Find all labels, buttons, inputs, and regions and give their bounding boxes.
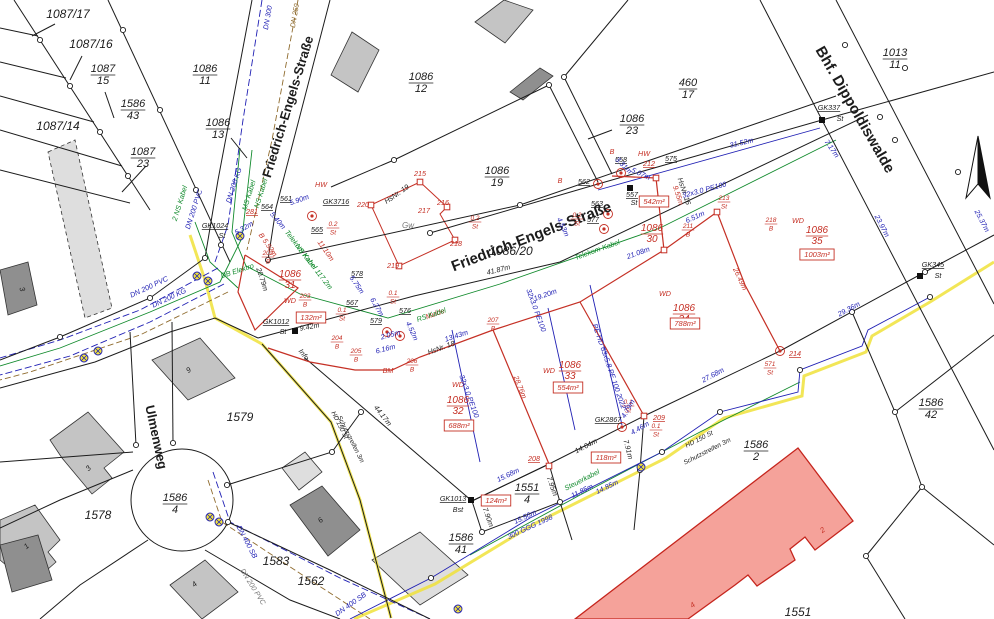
area-value: 554m² <box>557 383 579 392</box>
street-name: Friedrich-Engels-Straße <box>449 198 614 275</box>
map-label: 565 <box>311 225 324 234</box>
parcel-number: 1086 <box>279 269 302 280</box>
point-label: 205 <box>350 348 362 355</box>
map-label: 575 <box>665 154 678 163</box>
map-label: Telekom Kabel <box>573 237 621 262</box>
boundary-point <box>717 409 722 414</box>
map-label: 29.36m <box>835 299 861 319</box>
area-value: 542m² <box>643 197 665 206</box>
map-label: HW <box>315 180 328 189</box>
map-label: GK337 <box>818 103 841 112</box>
subdivision-line <box>717 212 780 351</box>
map-label: 216 <box>436 198 449 207</box>
parcel-number: 1562 <box>298 574 325 588</box>
map-label: DN 200 PVC <box>238 567 268 607</box>
map-label: 579 <box>370 316 382 325</box>
point-label: B <box>491 326 496 333</box>
boundary-point <box>427 230 432 235</box>
survey-point-dot <box>620 425 623 428</box>
point-label: 0.1 <box>651 423 660 430</box>
map-label: 6.16m <box>375 342 397 356</box>
map-label: Schutzstreifen 3m <box>335 415 365 465</box>
map-label: B <box>610 147 615 156</box>
parcel-line <box>262 344 391 618</box>
boundary-point <box>218 242 223 247</box>
site-plan-map: Friedrich-Engels-StraßeFriedrich-Engels-… <box>0 0 994 619</box>
new-boundary-point <box>714 209 720 215</box>
gk-marker <box>468 497 474 503</box>
parcel-line <box>105 92 114 118</box>
map-label: 23.97m <box>872 212 892 238</box>
map-label: 208 <box>527 454 540 463</box>
boundary-point <box>659 449 664 454</box>
parcel-number: 1583 <box>263 554 290 568</box>
parcel-number: 23 <box>136 158 150 170</box>
point-label: St <box>472 224 479 231</box>
map-label: HsNr. 18 <box>426 339 455 357</box>
parcel-number: 1013 <box>883 47 908 59</box>
map-label: WD <box>792 216 804 225</box>
parcel-number: 19 <box>491 177 503 189</box>
area-value: 132m² <box>300 313 322 322</box>
north-arrow-icon <box>966 136 978 198</box>
point-label: B <box>335 344 340 351</box>
boundary-point <box>557 499 562 504</box>
map-label: St <box>837 114 845 123</box>
survey-point-dot <box>602 227 605 230</box>
map-label: 212 <box>642 159 655 168</box>
boundary-point <box>225 519 230 524</box>
map-label: 214 <box>788 349 801 358</box>
boundary-point <box>517 202 522 207</box>
parcel-line <box>836 0 994 304</box>
boundary-point <box>120 27 125 32</box>
duct-line <box>208 480 370 619</box>
map-label: DN 400 SB <box>235 524 260 560</box>
parcel-line <box>866 487 922 556</box>
point-label: 218 <box>765 217 777 224</box>
parcel-number: 11 <box>199 75 210 87</box>
boundary-point <box>546 82 551 87</box>
map-label: WD <box>543 366 555 375</box>
point-label: B <box>266 259 271 266</box>
parcel-number: 30 <box>646 234 658 245</box>
map-label: 563 <box>591 199 603 208</box>
map-label: 577 <box>587 215 600 224</box>
parcel-number: 1086 <box>559 360 582 371</box>
parcel-line <box>866 556 905 619</box>
building <box>282 452 322 490</box>
parcel-number: 1579 <box>227 410 254 424</box>
parcel-line <box>331 85 549 187</box>
map-label: 6.27m <box>368 296 386 318</box>
new-boundary-point <box>368 202 374 208</box>
boundary-point <box>892 137 897 142</box>
parcel-number: 1086 <box>806 225 829 236</box>
boundary-point <box>842 42 847 47</box>
boundary-point <box>157 107 162 112</box>
gk-marker <box>819 117 825 123</box>
parcel-number: 15 <box>97 75 110 87</box>
map-label: 25.37m <box>972 207 992 233</box>
cable-line <box>0 150 252 366</box>
boundary-point <box>561 74 566 79</box>
boundary-point <box>170 440 175 445</box>
parcel-number: 1086 <box>673 303 696 314</box>
new-boundary-point <box>546 463 552 469</box>
parcel-line <box>564 77 612 174</box>
parcel-number: 1086 <box>485 165 510 177</box>
building <box>48 140 112 318</box>
point-label: St <box>767 370 774 377</box>
parcel-number: 1586 <box>744 439 769 451</box>
parcel-number: 1086 <box>620 113 645 125</box>
map-label: St <box>631 198 639 207</box>
parcel-number: 11 <box>889 59 900 71</box>
planned-building <box>575 448 853 619</box>
map-label: St <box>219 231 227 240</box>
parcel-number: 31 <box>284 280 295 291</box>
map-label: 11.10m <box>316 238 337 262</box>
gk-marker <box>917 273 923 279</box>
point-label: 0.1 <box>388 290 397 297</box>
new-boundary-point <box>417 179 423 185</box>
map-label: 7.90m <box>481 506 496 528</box>
map-label: 564 <box>261 202 273 211</box>
water-line <box>598 128 820 190</box>
map-label: WD <box>284 296 296 305</box>
point-label: B <box>354 357 359 364</box>
point-label: 203 <box>299 293 311 300</box>
map-label: DN 250 <box>288 3 301 29</box>
boundary-point <box>877 114 882 119</box>
point-label: B <box>686 232 691 239</box>
map-label: St <box>280 327 288 336</box>
parcel-number: 1586 <box>163 492 188 504</box>
map-label: GK2867 <box>595 415 622 424</box>
boundary-point <box>358 409 363 414</box>
parcel-line <box>895 412 922 487</box>
point-label: St <box>390 299 397 306</box>
boundary-point <box>391 157 396 162</box>
parcel-line <box>0 28 38 36</box>
map-label: 220 <box>356 200 369 209</box>
boundary-point <box>202 255 207 260</box>
area-value: 124m² <box>485 496 507 505</box>
point-label: 206 <box>406 358 418 365</box>
point-label: 204 <box>331 335 343 342</box>
north-arrow <box>966 136 990 198</box>
parcel-number: 1551 <box>515 482 539 494</box>
parcel-number: 1086 <box>409 71 434 83</box>
boundary-point <box>902 65 907 70</box>
parcel-line <box>922 487 994 545</box>
gk-marker <box>292 328 298 334</box>
map-label: 562 <box>578 177 590 186</box>
parcel-number: 35 <box>811 236 823 247</box>
map-label: B <box>558 176 563 185</box>
map-label: 21.08m <box>624 244 651 261</box>
map-label: Info <box>297 347 311 362</box>
north-arrow-icon <box>978 136 990 198</box>
map-label: DB Elektro <box>219 261 254 280</box>
parcel-number: 33 <box>564 371 576 382</box>
new-boundary-point <box>661 247 667 253</box>
point-label: 0.2 <box>470 215 479 222</box>
map-label: DN 200 KG <box>224 166 244 204</box>
parcel-line <box>895 335 994 412</box>
point-label: 571 <box>765 361 776 368</box>
map-label: 219 <box>386 261 399 270</box>
map-label: WD <box>659 289 671 298</box>
parcel-line <box>549 85 598 182</box>
parcel-number: 13 <box>212 129 225 141</box>
map-label: 28.76m <box>511 373 529 400</box>
parcel-line <box>130 332 136 445</box>
map-label: GK1012 <box>263 317 289 326</box>
map-label: 218 <box>449 239 462 248</box>
parcel-number: 1087/14 <box>36 119 80 133</box>
boundary-point <box>67 83 72 88</box>
map-label: GK3716 <box>323 197 349 206</box>
street-name: Ulmenweg <box>142 404 170 471</box>
parcel-number: 12 <box>415 83 427 95</box>
survey-point-dot <box>778 349 781 352</box>
parcel-number: 1586 <box>449 532 474 544</box>
new-boundary-point <box>653 175 659 181</box>
point-label: St <box>653 432 660 439</box>
area-value: 118m² <box>596 453 617 462</box>
map-label: GK1024 <box>202 221 228 230</box>
map-label: PE-HD 63x5.8 PE 100 2022 <box>591 322 629 410</box>
parcel-line <box>588 130 612 139</box>
boundary-point <box>57 334 62 339</box>
area-value: 1003m² <box>804 250 830 259</box>
parcel-number: 1087 <box>131 146 156 158</box>
parcel-number: 43 <box>127 110 140 122</box>
parcel-number: 42 <box>925 409 937 421</box>
building <box>50 412 124 494</box>
point-label: St <box>721 204 728 211</box>
point-label: 0.1 <box>337 307 346 314</box>
building <box>290 486 360 556</box>
map-label: HW <box>638 149 651 158</box>
parcel-number: 1087 <box>91 63 116 75</box>
map-label: 215 <box>413 169 427 178</box>
map-label: 576 <box>399 306 411 315</box>
parcel-number: 32 <box>452 406 464 417</box>
site-plan: Friedrich-Engels-StraßeFriedrich-Engels-… <box>0 0 994 619</box>
point-label: 0.2 <box>572 212 581 219</box>
map-label: 7.95m <box>545 475 560 497</box>
parcel-number: 23 <box>625 125 639 137</box>
building <box>331 32 379 92</box>
map-label: St <box>935 271 943 280</box>
boundary-point <box>927 294 932 299</box>
map-label: 26.49m <box>731 265 750 291</box>
map-label: 567 <box>346 298 359 307</box>
point-label: St <box>339 316 346 323</box>
map-label: HsNr. 19 <box>382 182 410 205</box>
map-label: Bst <box>453 505 464 514</box>
point-label: 0.2 <box>328 221 337 228</box>
parcel-number: 460 <box>679 77 698 89</box>
map-label: GK345 <box>922 260 945 269</box>
boundary-point <box>479 529 484 534</box>
map-label: 27.68m <box>699 365 725 385</box>
building <box>152 338 235 400</box>
map-label: 217 <box>417 206 431 215</box>
boundary-point <box>919 484 924 489</box>
map-label: DN 300 <box>261 5 274 31</box>
parcel-number: 1087/17 <box>46 7 91 21</box>
point-label: B <box>769 226 774 233</box>
boundary-point <box>125 173 130 178</box>
point-label: 213 <box>718 195 730 202</box>
parcel-number: 1086 <box>641 223 664 234</box>
parcel-line <box>70 56 82 80</box>
map-label: 7.91m <box>621 439 635 461</box>
boundary-point <box>37 37 42 42</box>
map-label: DN 200 KG <box>150 286 187 310</box>
parcel-line <box>564 0 628 77</box>
area-value: 788m² <box>674 319 696 328</box>
parcel-number: 4 <box>524 494 530 506</box>
parcel-number: 4 <box>172 504 178 516</box>
parcel-number: 1086 <box>193 63 218 75</box>
point-label: 207 <box>487 317 499 324</box>
boundary-point <box>955 169 960 174</box>
map-label: 14.85m <box>594 477 620 496</box>
boundary-point <box>892 409 897 414</box>
map-label: 209 <box>652 413 665 422</box>
boundary-point <box>133 442 138 447</box>
map-label: 5.75m <box>348 274 367 296</box>
map-label: Gw <box>402 221 415 230</box>
map-label: GK1013 <box>440 494 466 503</box>
parcel-number: 1087/16 <box>69 37 113 51</box>
point-label: B <box>303 302 308 309</box>
survey-point-dot <box>619 171 622 174</box>
map-label: 44.17m <box>372 403 394 427</box>
parcel-number: 1586 <box>121 98 146 110</box>
survey-point-dot <box>596 182 599 185</box>
boundary-point <box>224 482 229 487</box>
new-boundary-point <box>641 413 647 419</box>
map-label: 5.40m <box>268 210 288 231</box>
map-label: BM <box>383 366 394 375</box>
parcel-number: 17 <box>682 89 695 101</box>
building <box>475 0 533 43</box>
survey-point-dot <box>310 214 313 217</box>
parcel-number: 41 <box>455 544 467 556</box>
parcel-number: 1086/20 <box>489 244 533 258</box>
parcel-number: 1586 <box>919 397 944 409</box>
boundary-point <box>922 269 927 274</box>
parcel-line <box>32 24 55 36</box>
boundary-point <box>428 575 433 580</box>
parcel-number: 2 <box>752 451 759 463</box>
boundary-point <box>329 449 334 454</box>
point-label: St <box>330 230 337 237</box>
boundary-point <box>97 129 102 134</box>
boundary-point <box>863 553 868 558</box>
boundary-point <box>797 367 802 372</box>
parcel-line <box>172 322 173 443</box>
map-label: 7.17m <box>823 138 842 160</box>
point-label: B <box>410 367 415 374</box>
parcel-line <box>40 540 148 619</box>
area-value: 688m² <box>448 421 470 430</box>
parcel-number: 1578 <box>85 508 112 522</box>
building <box>170 560 238 619</box>
parcel-number: 1086 <box>206 117 231 129</box>
parcel-number: 1551 <box>785 605 812 619</box>
